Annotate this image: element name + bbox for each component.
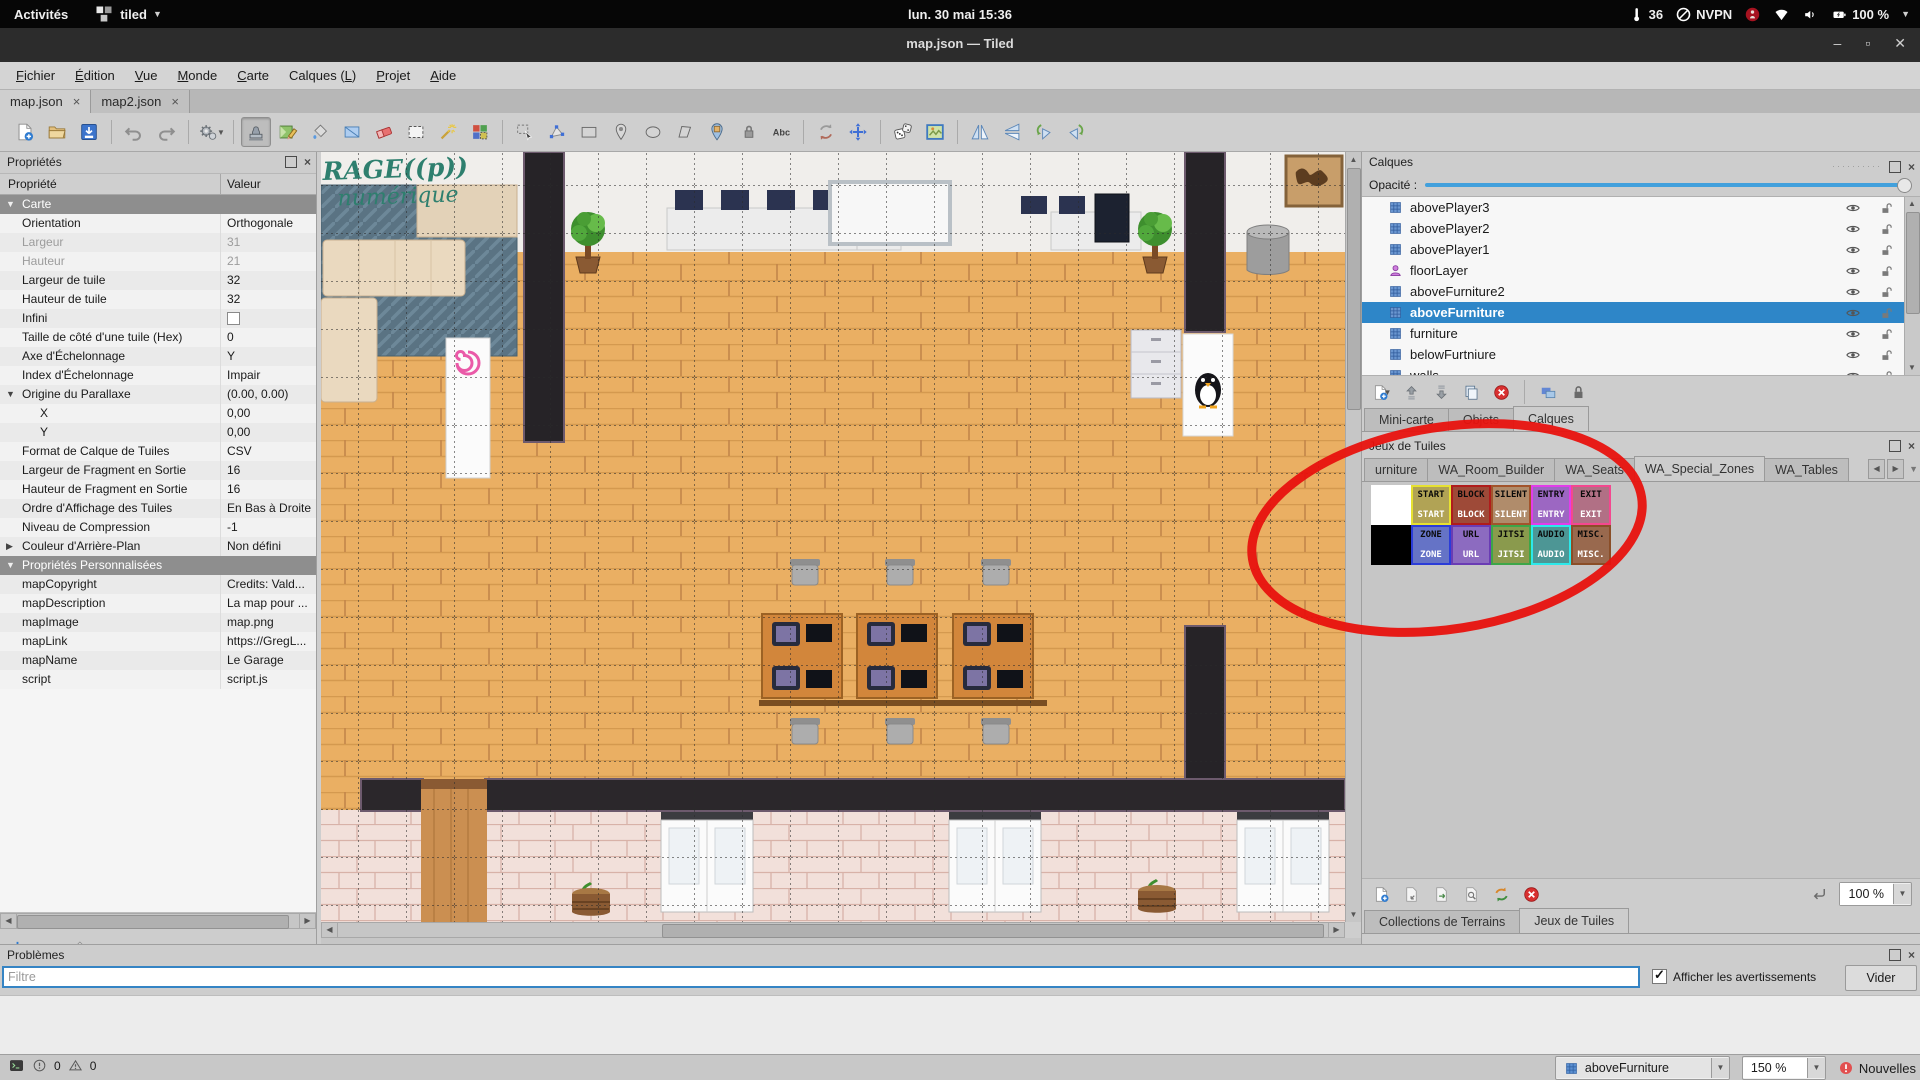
property-row[interactable]: Y 0,00 xyxy=(0,423,316,442)
property-label: Hauteur xyxy=(0,252,221,271)
toolbar-separator xyxy=(111,120,112,144)
menu-fichier[interactable]: Fichier xyxy=(6,64,65,87)
highlight-layer-button[interactable] xyxy=(1536,380,1560,404)
app-badge-icon xyxy=(1744,6,1761,23)
scrollbar-thumb[interactable] xyxy=(17,915,289,929)
lock-open-icon xyxy=(1879,264,1894,279)
palette-tile-misc[interactable]: MISC.MISC. xyxy=(1571,525,1611,565)
layer-name: belowFurtniure xyxy=(1410,347,1833,362)
tray-thermometer[interactable]: 36 xyxy=(1628,6,1663,23)
rotate-left-icon xyxy=(1033,121,1055,143)
flip-vertical-icon xyxy=(1001,121,1023,143)
doc-tab-map.json[interactable]: map.json × xyxy=(0,90,91,113)
same-tile-select-button[interactable] xyxy=(465,117,495,147)
property-value[interactable] xyxy=(221,309,316,328)
property-row[interactable]: Format de Calque de Tuiles CSV xyxy=(0,442,316,461)
close-panel-icon[interactable]: × xyxy=(1908,441,1915,451)
menu-projet[interactable]: Projet xyxy=(366,64,420,87)
menu-carte[interactable]: Carte xyxy=(227,64,279,87)
shape-fill-icon xyxy=(341,121,363,143)
dock-tab-Mini-carte[interactable]: Mini-carte xyxy=(1364,408,1449,431)
tile-label: START xyxy=(1413,510,1449,520)
layer-row-abovePlayer3[interactable]: abovePlayer3 xyxy=(1362,197,1920,218)
eye-icon xyxy=(1845,200,1861,216)
tile-layer-icon xyxy=(1388,347,1403,362)
property-value[interactable]: 0,00 xyxy=(221,404,316,423)
problems-filter-input[interactable] xyxy=(2,966,1640,988)
float-panel-icon[interactable] xyxy=(285,156,297,168)
tile-label: SILENT xyxy=(1493,490,1529,500)
tileset-tab-WA_Seats[interactable]: WA_Seats xyxy=(1554,458,1635,481)
random-mode-button[interactable] xyxy=(888,117,918,147)
property-row[interactable]: ▼Origine du Parallaxe (0.00, 0.00) xyxy=(0,385,316,404)
scroll-up-icon[interactable]: ▲ xyxy=(1905,197,1919,211)
chevron-down-icon[interactable]: ▼ xyxy=(1711,1058,1729,1078)
properties-table[interactable]: ▼Carte Orientation Orthogonale Largeur 3… xyxy=(0,195,316,729)
property-value[interactable]: (0.00, 0.00) xyxy=(221,385,316,404)
property-label: Ordre d'Affichage des Tuiles xyxy=(0,499,221,518)
tray-volume[interactable] xyxy=(1802,6,1819,23)
layer-name: walls xyxy=(1410,368,1833,376)
tile-label: URL xyxy=(1453,530,1489,540)
property-label: Axe d'Échelonnage xyxy=(0,347,221,366)
tile-label: ENTRY xyxy=(1533,490,1569,500)
property-row[interactable]: Infini xyxy=(0,309,316,328)
tile-layer-icon xyxy=(1388,284,1403,299)
pan-button[interactable] xyxy=(843,117,873,147)
scroll-down-icon[interactable]: ▼ xyxy=(1346,907,1361,922)
expander-icon[interactable]: ▼ xyxy=(6,556,15,575)
property-row[interactable]: Niveau de Compression -1 xyxy=(0,518,316,537)
embed-tileset-button[interactable] xyxy=(1400,883,1423,906)
scroll-down-icon[interactable]: ▼ xyxy=(1905,361,1919,375)
flip-vertical-button[interactable] xyxy=(997,117,1027,147)
layer-lock-toggle[interactable] xyxy=(1873,304,1899,320)
window-titlebar[interactable]: map.json — Tiled – ▫ ✕ xyxy=(0,28,1920,62)
layer-name: aboveFurniture xyxy=(1410,305,1833,320)
property-row[interactable]: ▼Propriétés Personnalisées xyxy=(0,556,316,575)
tile-label: AUDIO xyxy=(1533,530,1569,540)
doc-tab-map2.json[interactable]: map2.json × xyxy=(91,90,190,113)
menubar: FichierÉditionVueMondeCarteCalques (L)Pr… xyxy=(0,62,1920,90)
remove-tileset-button[interactable] xyxy=(1520,883,1543,906)
property-row[interactable]: script script.js xyxy=(0,670,316,689)
layer-row-abovePlayer1[interactable]: abovePlayer1 xyxy=(1362,239,1920,260)
insert-polygon-button[interactable] xyxy=(670,117,700,147)
map-hscrollbar[interactable]: ◀ ▶ xyxy=(321,922,1345,938)
property-row[interactable]: ▼Carte xyxy=(0,195,316,214)
palette-tile-start[interactable]: STARTSTART xyxy=(1411,485,1451,525)
duplicate-layer-icon xyxy=(1462,383,1481,402)
palette-tile[interactable] xyxy=(1371,485,1411,525)
chevron-down-icon[interactable]: ▼ xyxy=(1909,464,1918,474)
layer-visibility-toggle[interactable] xyxy=(1840,304,1866,321)
flip-horizontal-button[interactable] xyxy=(965,117,995,147)
toolbar-separator xyxy=(957,120,958,144)
commands-button[interactable]: ▼ xyxy=(196,117,226,147)
property-value[interactable]: Impair xyxy=(221,366,316,385)
clear-problems-button[interactable]: Vider xyxy=(1845,965,1917,991)
rotate-left-button[interactable] xyxy=(1029,117,1059,147)
tray-battery[interactable]: 100 % xyxy=(1831,6,1889,23)
scrollbar-thumb[interactable] xyxy=(662,924,1324,938)
tileset-tab-WA_Tables[interactable]: WA_Tables xyxy=(1764,458,1849,481)
scroll-up-icon[interactable]: ▲ xyxy=(1346,152,1361,167)
new-tileset-button[interactable] xyxy=(1370,883,1393,906)
rect-select-button[interactable] xyxy=(401,117,431,147)
palette-tile-zone[interactable]: ZONEZONE xyxy=(1411,525,1451,565)
tray-vpn-slash[interactable]: NVPN xyxy=(1675,6,1732,23)
layer-visibility-toggle[interactable] xyxy=(1840,283,1866,300)
dock-tab-Objets[interactable]: Objets xyxy=(1448,408,1514,431)
map-canvas[interactable]: RAGE((p)) numérique xyxy=(321,152,1345,922)
property-value[interactable]: 16 xyxy=(221,480,316,499)
properties-column-header: Propriété Valeur xyxy=(0,173,316,195)
property-row[interactable]: Largeur 31 xyxy=(0,233,316,252)
duplicate-layer-button[interactable] xyxy=(1459,380,1483,404)
map-zoom-combo[interactable]: 150 % ▼ xyxy=(1742,1056,1826,1080)
maximize-button[interactable]: ▫ xyxy=(1865,35,1870,52)
tile-label: MISC. xyxy=(1573,530,1609,540)
lock-open-icon xyxy=(1879,285,1894,300)
remove-layer-button[interactable] xyxy=(1489,380,1513,404)
property-label: mapDescription xyxy=(0,594,221,613)
palette-tile-silent[interactable]: SILENTSILENT xyxy=(1491,485,1531,525)
minimize-button[interactable]: – xyxy=(1834,35,1842,52)
property-label: Format de Calque de Tuiles xyxy=(0,442,221,461)
current-layer-value: aboveFurniture xyxy=(1585,1058,1703,1078)
layer-row-aboveFurniture2[interactable]: aboveFurniture2 xyxy=(1362,281,1920,302)
eye-icon xyxy=(1845,347,1861,363)
checkbox-icon[interactable] xyxy=(227,312,240,325)
layer-lock-toggle[interactable] xyxy=(1873,241,1899,257)
insert-polygon-icon xyxy=(674,121,696,143)
edit-tileset-button[interactable] xyxy=(1460,883,1483,906)
dynamic-wrap-icon[interactable] xyxy=(1810,885,1829,904)
tileset-zoom-value: 100 % xyxy=(1840,883,1893,905)
tabs-scroll-left-icon[interactable]: ◀ xyxy=(1868,459,1885,479)
menu-calques-l-[interactable]: Calques (L) xyxy=(279,64,366,87)
error-badge-icon xyxy=(32,1058,47,1073)
insert-text-icon: Abc xyxy=(770,121,792,143)
layer-row-aboveFurniture[interactable]: aboveFurniture xyxy=(1362,302,1920,323)
map-image-button[interactable] xyxy=(920,117,950,147)
layers-vscrollbar[interactable]: ▲ ▼ xyxy=(1904,197,1920,375)
insert-tile-button[interactable] xyxy=(702,117,732,147)
layer-row-walls[interactable]: walls xyxy=(1362,365,1920,376)
replace-tileset-button[interactable] xyxy=(1490,883,1513,906)
tile-layer-icon xyxy=(1388,368,1403,376)
stamp-brush-button[interactable] xyxy=(241,117,271,147)
layer-lock-toggle[interactable] xyxy=(1873,262,1899,278)
opacity-slider[interactable] xyxy=(1425,183,1910,187)
volume-icon xyxy=(1802,6,1819,23)
raise-layer-button[interactable] xyxy=(1399,380,1423,404)
system-tray[interactable]: 36NVPN100 %▼ xyxy=(1628,0,1910,28)
insert-ellipse-button[interactable] xyxy=(638,117,668,147)
layer-lock-toggle[interactable] xyxy=(1873,367,1899,376)
properties-empty-area xyxy=(0,729,316,913)
float-panel-icon[interactable] xyxy=(1889,949,1901,961)
property-row[interactable]: Ordre d'Affichage des Tuiles En Bas à Dr… xyxy=(0,499,316,518)
layer-visibility-toggle[interactable] xyxy=(1840,220,1866,237)
new-layer-button[interactable]: ▼ xyxy=(1369,380,1393,404)
tabs-scroll-right-icon[interactable]: ▶ xyxy=(1887,459,1904,479)
console-icon xyxy=(8,1057,25,1074)
bottom-tab-Jeux-de-Tuiles[interactable]: Jeux de Tuiles xyxy=(1519,908,1629,933)
layer-lock-toggle[interactable] xyxy=(1873,199,1899,215)
tray-battery-label: 100 % xyxy=(1852,7,1889,22)
export-tileset-button[interactable] xyxy=(1430,883,1453,906)
property-row[interactable]: mapName Le Garage xyxy=(0,651,316,670)
property-row[interactable]: Hauteur de Fragment en Sortie 16 xyxy=(0,480,316,499)
chevron-down-icon: ▼ xyxy=(217,128,225,137)
eye-icon xyxy=(1845,263,1861,279)
chevron-down-icon[interactable]: ▼ xyxy=(1901,9,1910,19)
property-label: X xyxy=(0,404,221,423)
tile-layer-icon xyxy=(1564,1061,1579,1076)
news-notification[interactable]: Nouvelles xyxy=(1838,1060,1916,1076)
tileset-tab-urniture[interactable]: urniture xyxy=(1364,458,1428,481)
property-label: Index d'Échelonnage xyxy=(0,366,221,385)
layer-lock-toggle[interactable] xyxy=(1873,283,1899,299)
bottom-tab-Collections-de-Terrains[interactable]: Collections de Terrains xyxy=(1364,910,1520,933)
insert-text-button[interactable]: Abc xyxy=(766,117,796,147)
close-tab-icon[interactable]: × xyxy=(73,94,81,109)
dock-tab-Calques[interactable]: Calques xyxy=(1513,406,1589,431)
save-map-button[interactable] xyxy=(74,117,104,147)
toolbar-separator xyxy=(233,120,234,144)
property-row[interactable]: mapLink https://GregL... xyxy=(0,632,316,651)
select-objects-icon xyxy=(514,121,536,143)
palette-tile-jitsi[interactable]: JITSIJITSI xyxy=(1491,525,1531,565)
property-value[interactable]: Le Garage xyxy=(221,651,316,670)
error-count: 0 xyxy=(54,1059,61,1073)
close-tab-icon[interactable]: × xyxy=(171,94,179,109)
close-panel-icon[interactable]: × xyxy=(304,157,311,167)
property-value[interactable]: map.png xyxy=(221,613,316,632)
property-value[interactable]: CSV xyxy=(221,442,316,461)
property-label: Largeur de Fragment en Sortie xyxy=(0,461,221,480)
property-value[interactable]: 0 xyxy=(221,328,316,347)
layer-row-floorLayer[interactable]: floorLayer xyxy=(1362,260,1920,281)
expander-icon[interactable]: ▼ xyxy=(6,385,15,404)
show-warnings-label: Afficher les avertissements xyxy=(1673,970,1816,984)
property-label: ▼Propriétés Personnalisées xyxy=(0,556,316,575)
close-panel-icon[interactable]: × xyxy=(1908,950,1915,960)
lower-layer-button[interactable] xyxy=(1429,380,1453,404)
tileset-palette[interactable]: STARTSTART BLOCKBLOCK SILENTSILENT ENTRY… xyxy=(1362,482,1920,879)
tileset-tab-WA_Room_Builder[interactable]: WA_Room_Builder xyxy=(1427,458,1555,481)
tray-wifi[interactable] xyxy=(1773,6,1790,23)
property-value[interactable]: https://GregL... xyxy=(221,632,316,651)
insert-tile-icon xyxy=(706,121,728,143)
map-vscrollbar[interactable]: ▲ ▼ xyxy=(1345,152,1361,922)
eye-icon xyxy=(1845,368,1861,376)
layer-visibility-toggle[interactable] xyxy=(1840,262,1866,279)
tile-label: START xyxy=(1413,490,1449,500)
tiled-logo-icon xyxy=(94,4,114,24)
property-row[interactable]: ▶Couleur d'Arrière-Plan Non défini xyxy=(0,537,316,556)
error-indicator[interactable] xyxy=(32,1058,47,1073)
expander-icon[interactable]: ▼ xyxy=(6,195,15,214)
undo-button[interactable] xyxy=(119,117,149,147)
console-toggle[interactable] xyxy=(8,1057,25,1074)
select-objects-button[interactable] xyxy=(510,117,540,147)
scroll-left-icon[interactable]: ◀ xyxy=(1,914,17,928)
property-value[interactable]: En Bas à Droite xyxy=(221,499,316,518)
right-dock: Calques ·········· × Opacité : abovePlay… xyxy=(1361,152,1920,944)
activities-button[interactable]: Activités xyxy=(14,7,68,22)
shape-fill-button[interactable] xyxy=(337,117,367,147)
layer-lock-toggle[interactable] xyxy=(1873,346,1899,362)
eye-icon xyxy=(1845,221,1861,237)
scrollbar-thumb[interactable] xyxy=(1347,168,1361,410)
insert-point-button[interactable] xyxy=(606,117,636,147)
eraser-button[interactable] xyxy=(369,117,399,147)
property-label: mapImage xyxy=(0,613,221,632)
palette-tile-exit[interactable]: EXITEXIT xyxy=(1571,485,1611,525)
insert-ellipse-icon xyxy=(642,121,664,143)
tile-label: EXIT xyxy=(1573,510,1609,520)
float-panel-icon[interactable] xyxy=(1889,161,1901,173)
bucket-fill-button[interactable] xyxy=(305,117,335,147)
stamp-brush-icon xyxy=(245,121,267,143)
tray-vpn-slash-label: NVPN xyxy=(1696,7,1732,22)
slider-handle[interactable] xyxy=(1897,178,1912,193)
layer-visibility-toggle[interactable] xyxy=(1840,241,1866,258)
layer-visibility-toggle[interactable] xyxy=(1840,325,1866,342)
palette-tile-url[interactable]: URLURL xyxy=(1451,525,1491,565)
scroll-right-icon[interactable]: ▶ xyxy=(1328,923,1344,937)
property-row[interactable]: mapDescription La map pour ... xyxy=(0,594,316,613)
property-label: Niveau de Compression xyxy=(0,518,221,537)
menu-monde[interactable]: Monde xyxy=(167,64,227,87)
property-row[interactable]: Largeur de Fragment en Sortie 16 xyxy=(0,461,316,480)
magic-wand-button[interactable] xyxy=(433,117,463,147)
property-row[interactable]: Largeur de tuile 32 xyxy=(0,271,316,290)
layer-row-abovePlayer2[interactable]: abovePlayer2 xyxy=(1362,218,1920,239)
current-layer-combo[interactable]: aboveFurniture ▼ xyxy=(1555,1056,1730,1080)
insert-template-button[interactable] xyxy=(734,117,764,147)
redo-button[interactable] xyxy=(151,117,181,147)
property-value[interactable]: script.js xyxy=(221,670,316,689)
chevron-down-icon[interactable]: ▼ xyxy=(1893,884,1911,904)
property-row[interactable]: mapCopyright Credits: Vald... xyxy=(0,575,316,594)
property-value[interactable]: La map pour ... xyxy=(221,594,316,613)
tileset-zoom-combo[interactable]: 100 % ▼ xyxy=(1839,882,1912,906)
float-panel-icon[interactable] xyxy=(1889,440,1901,452)
tile-label: BLOCK xyxy=(1453,490,1489,500)
property-value[interactable]: 32 xyxy=(221,271,316,290)
terrain-brush-button[interactable] xyxy=(273,117,303,147)
layer-lock-toggle[interactable] xyxy=(1873,220,1899,236)
chevron-down-icon[interactable]: ▼ xyxy=(1807,1058,1825,1078)
app-menu[interactable]: tiled ▼ xyxy=(94,4,162,24)
close-panel-icon[interactable]: × xyxy=(1908,162,1915,172)
new-map-button[interactable] xyxy=(10,117,40,147)
palette-tile-entry[interactable]: ENTRYENTRY xyxy=(1531,485,1571,525)
insert-point-icon xyxy=(610,121,632,143)
gnome-topbar: Activités tiled ▼ lun. 30 mai 15:36 36NV… xyxy=(0,0,1920,28)
property-label: Hauteur de Fragment en Sortie xyxy=(0,480,221,499)
menu--dition[interactable]: Édition xyxy=(65,64,125,87)
property-row[interactable]: Orientation Orthogonale xyxy=(0,214,316,233)
reload-button[interactable] xyxy=(811,117,841,147)
toolbar-separator xyxy=(188,120,189,144)
palette-tile[interactable] xyxy=(1371,525,1411,565)
alert-icon xyxy=(1838,1060,1854,1076)
close-button[interactable]: ✕ xyxy=(1894,35,1906,52)
tile-label: ENTRY xyxy=(1533,510,1569,520)
checkbox-icon[interactable] xyxy=(1652,969,1667,984)
eye-icon xyxy=(1845,284,1861,300)
property-value[interactable]: Credits: Vald... xyxy=(221,575,316,594)
edit-polygons-button[interactable] xyxy=(542,117,572,147)
flip-horizontal-icon xyxy=(969,121,991,143)
property-value[interactable]: Orthogonale xyxy=(221,214,316,233)
property-row[interactable]: Hauteur de tuile 32 xyxy=(0,290,316,309)
show-warnings-checkbox[interactable]: Afficher les avertissements xyxy=(1652,969,1816,984)
property-value[interactable]: 16 xyxy=(221,461,316,480)
export-tileset-icon xyxy=(1432,885,1451,904)
property-row[interactable]: Index d'Échelonnage Impair xyxy=(0,366,316,385)
scroll-left-icon[interactable]: ◀ xyxy=(322,923,338,937)
layer-visibility-toggle[interactable] xyxy=(1840,199,1866,216)
layer-lock-toggle[interactable] xyxy=(1873,325,1899,341)
tile-label: BLOCK xyxy=(1453,510,1489,520)
menu-aide[interactable]: Aide xyxy=(420,64,466,87)
lock-layer-button[interactable] xyxy=(1566,380,1590,404)
palette-tile-audio[interactable]: AUDIOAUDIO xyxy=(1531,525,1571,565)
open-map-button[interactable] xyxy=(42,117,72,147)
magic-wand-icon xyxy=(437,121,459,143)
palette-tile-block[interactable]: BLOCKBLOCK xyxy=(1451,485,1491,525)
insert-rectangle-button[interactable] xyxy=(574,117,604,147)
property-label: Largeur xyxy=(0,233,221,252)
warning-indicator[interactable] xyxy=(68,1058,83,1073)
layer-row-furniture[interactable]: furniture xyxy=(1362,323,1920,344)
property-value[interactable]: 31 xyxy=(221,233,316,252)
scroll-right-icon[interactable]: ▶ xyxy=(299,914,315,928)
property-row[interactable]: mapImage map.png xyxy=(0,613,316,632)
scrollbar-thumb[interactable] xyxy=(1906,212,1920,314)
tray-app-badge[interactable] xyxy=(1744,6,1761,23)
expander-icon[interactable]: ▶ xyxy=(6,537,13,556)
tileset-tab-WA_Special_Zones[interactable]: WA_Special_Zones xyxy=(1634,456,1765,481)
property-row[interactable]: Hauteur 21 xyxy=(0,252,316,271)
layers-list[interactable]: abovePlayer3 abovePlayer2 abovePlayer1 f… xyxy=(1362,196,1920,376)
layer-visibility-toggle[interactable] xyxy=(1840,346,1866,363)
property-value[interactable]: Y xyxy=(221,347,316,366)
menu-vue[interactable]: Vue xyxy=(125,64,168,87)
property-row[interactable]: Axe d'Échelonnage Y xyxy=(0,347,316,366)
property-value[interactable]: Non défini xyxy=(221,537,316,556)
property-value[interactable]: 21 xyxy=(221,252,316,271)
layer-visibility-toggle[interactable] xyxy=(1840,367,1866,376)
layer-row-belowFurtniure[interactable]: belowFurtniure xyxy=(1362,344,1920,365)
property-row[interactable]: Taille de côté d'une tuile (Hex) 0 xyxy=(0,328,316,347)
rotate-right-button[interactable] xyxy=(1061,117,1091,147)
redo-icon xyxy=(155,121,177,143)
property-value[interactable]: 0,00 xyxy=(221,423,316,442)
property-value[interactable]: -1 xyxy=(221,518,316,537)
properties-hscrollbar[interactable]: ◀ ▶ xyxy=(0,913,316,929)
property-value[interactable]: 32 xyxy=(221,290,316,309)
embed-tileset-icon xyxy=(1402,885,1421,904)
property-row[interactable]: X 0,00 xyxy=(0,404,316,423)
insert-rectangle-icon xyxy=(578,121,600,143)
